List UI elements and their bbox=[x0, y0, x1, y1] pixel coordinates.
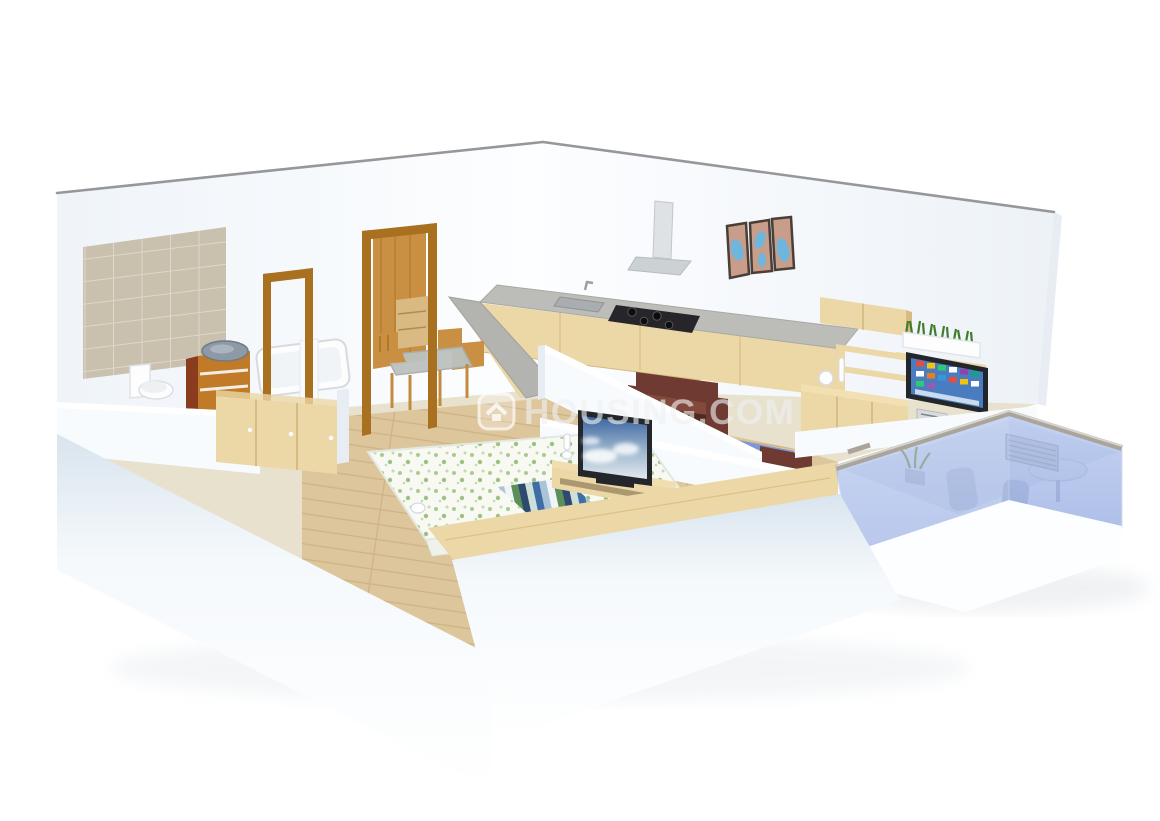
wardrobe bbox=[216, 390, 337, 474]
decor-vase bbox=[562, 451, 572, 459]
floor-plan-stage: HOUSING.COM bbox=[0, 0, 1160, 821]
decor-vase bbox=[839, 358, 844, 382]
floor-vase bbox=[411, 503, 425, 513]
dining-cabinet bbox=[396, 296, 428, 349]
hall-column-2 bbox=[337, 389, 349, 464]
watermark: HOUSING.COM bbox=[479, 393, 795, 432]
wall-art-triptych bbox=[727, 217, 794, 278]
decor-vase bbox=[564, 434, 570, 450]
housing-logo-icon bbox=[479, 394, 514, 429]
decor-vase bbox=[819, 371, 833, 385]
watermark-text: HOUSING.COM bbox=[524, 393, 795, 432]
floor-plan-canvas: HOUSING.COM bbox=[0, 0, 1160, 821]
